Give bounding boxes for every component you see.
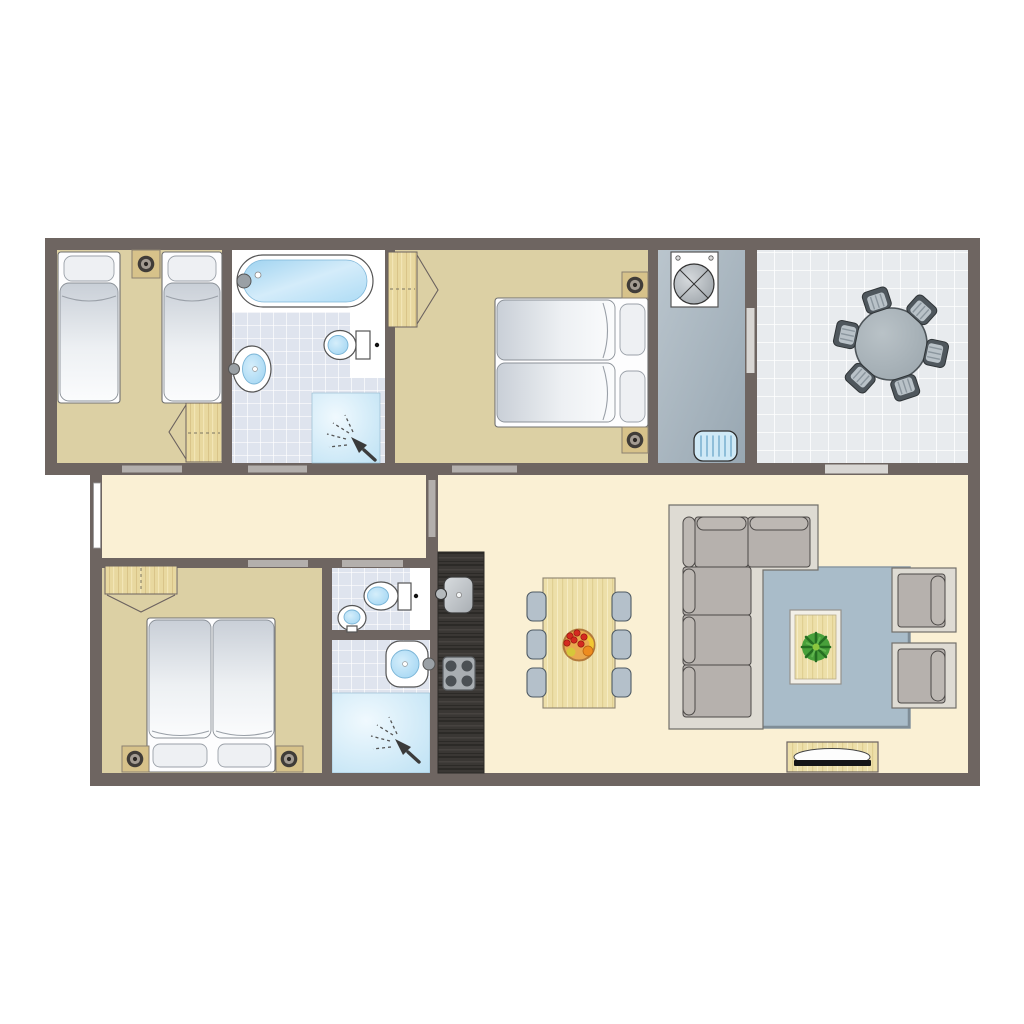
wall-bath2-kitchen bbox=[430, 568, 438, 773]
armchair-icon bbox=[892, 568, 956, 632]
shower-tray bbox=[332, 693, 430, 773]
double-bed-icon bbox=[495, 298, 648, 427]
armchair-icon bbox=[892, 643, 956, 708]
coffee-table-icon bbox=[790, 610, 841, 684]
floor-plan bbox=[0, 0, 1024, 1024]
single-bed-icon bbox=[162, 252, 222, 403]
pillow-icon bbox=[153, 744, 207, 767]
wall-top bbox=[45, 238, 980, 250]
toilet-icon bbox=[364, 582, 418, 610]
faucet-icon bbox=[423, 658, 435, 670]
door-threshold-icon bbox=[429, 480, 436, 537]
faucet-icon bbox=[229, 364, 240, 375]
plant-icon bbox=[802, 633, 830, 661]
bedside-lamp-icon bbox=[627, 277, 644, 294]
hob-icon bbox=[443, 657, 475, 690]
bathtub-icon bbox=[237, 255, 373, 307]
utility-terrace-door-icon bbox=[747, 308, 755, 373]
pillow-icon bbox=[168, 256, 216, 281]
tv-cabinet-icon bbox=[787, 742, 878, 772]
pillow-icon bbox=[64, 256, 114, 281]
garden-chair-icon bbox=[833, 320, 860, 350]
dining-chair-icon bbox=[527, 592, 546, 621]
window-icon bbox=[94, 483, 101, 548]
wall-bed3-bath2 bbox=[322, 568, 332, 773]
door-threshold-icon bbox=[248, 560, 308, 567]
dining-set bbox=[527, 578, 631, 708]
wc-toilet-zone bbox=[410, 568, 430, 630]
bedside-lamp-icon bbox=[281, 751, 298, 768]
floor-plan-canvas bbox=[0, 0, 1024, 1024]
single-bed-icon bbox=[58, 252, 120, 403]
terrace-door-icon bbox=[825, 465, 888, 474]
door-threshold-icon bbox=[342, 560, 403, 567]
door-threshold-icon bbox=[452, 466, 517, 473]
pillow-icon bbox=[620, 371, 645, 422]
bedside-lamp-icon bbox=[627, 432, 644, 449]
hallway-floor bbox=[102, 475, 426, 558]
wall-left-upper bbox=[45, 238, 57, 475]
wall-bed1-bath bbox=[222, 250, 232, 463]
kitchen bbox=[436, 552, 485, 773]
faucet-icon bbox=[436, 589, 447, 600]
door-threshold-icon bbox=[122, 466, 182, 473]
faucet-icon bbox=[237, 274, 251, 288]
pillow-icon bbox=[620, 304, 645, 355]
pillow-icon bbox=[218, 744, 271, 767]
wall-bed2-utility bbox=[648, 250, 658, 463]
dining-chair-icon bbox=[612, 592, 631, 621]
tv-icon bbox=[794, 760, 871, 766]
bedside-lamp-icon bbox=[127, 751, 144, 768]
wall-right bbox=[968, 238, 980, 786]
fruit-bowl-icon bbox=[564, 630, 595, 661]
bedside-lamp-icon bbox=[138, 256, 155, 273]
doormat-icon bbox=[694, 431, 737, 461]
washing-machine-icon bbox=[671, 252, 718, 307]
double-bed-icon bbox=[147, 618, 275, 772]
shower bbox=[312, 393, 380, 463]
dining-chair-icon bbox=[612, 668, 631, 697]
dining-chair-icon bbox=[527, 668, 546, 697]
dining-chair-icon bbox=[527, 630, 546, 659]
garden-chair-icon bbox=[923, 338, 950, 368]
door-threshold-icon bbox=[248, 466, 307, 473]
wall-bottom bbox=[90, 773, 980, 786]
dining-chair-icon bbox=[612, 630, 631, 659]
